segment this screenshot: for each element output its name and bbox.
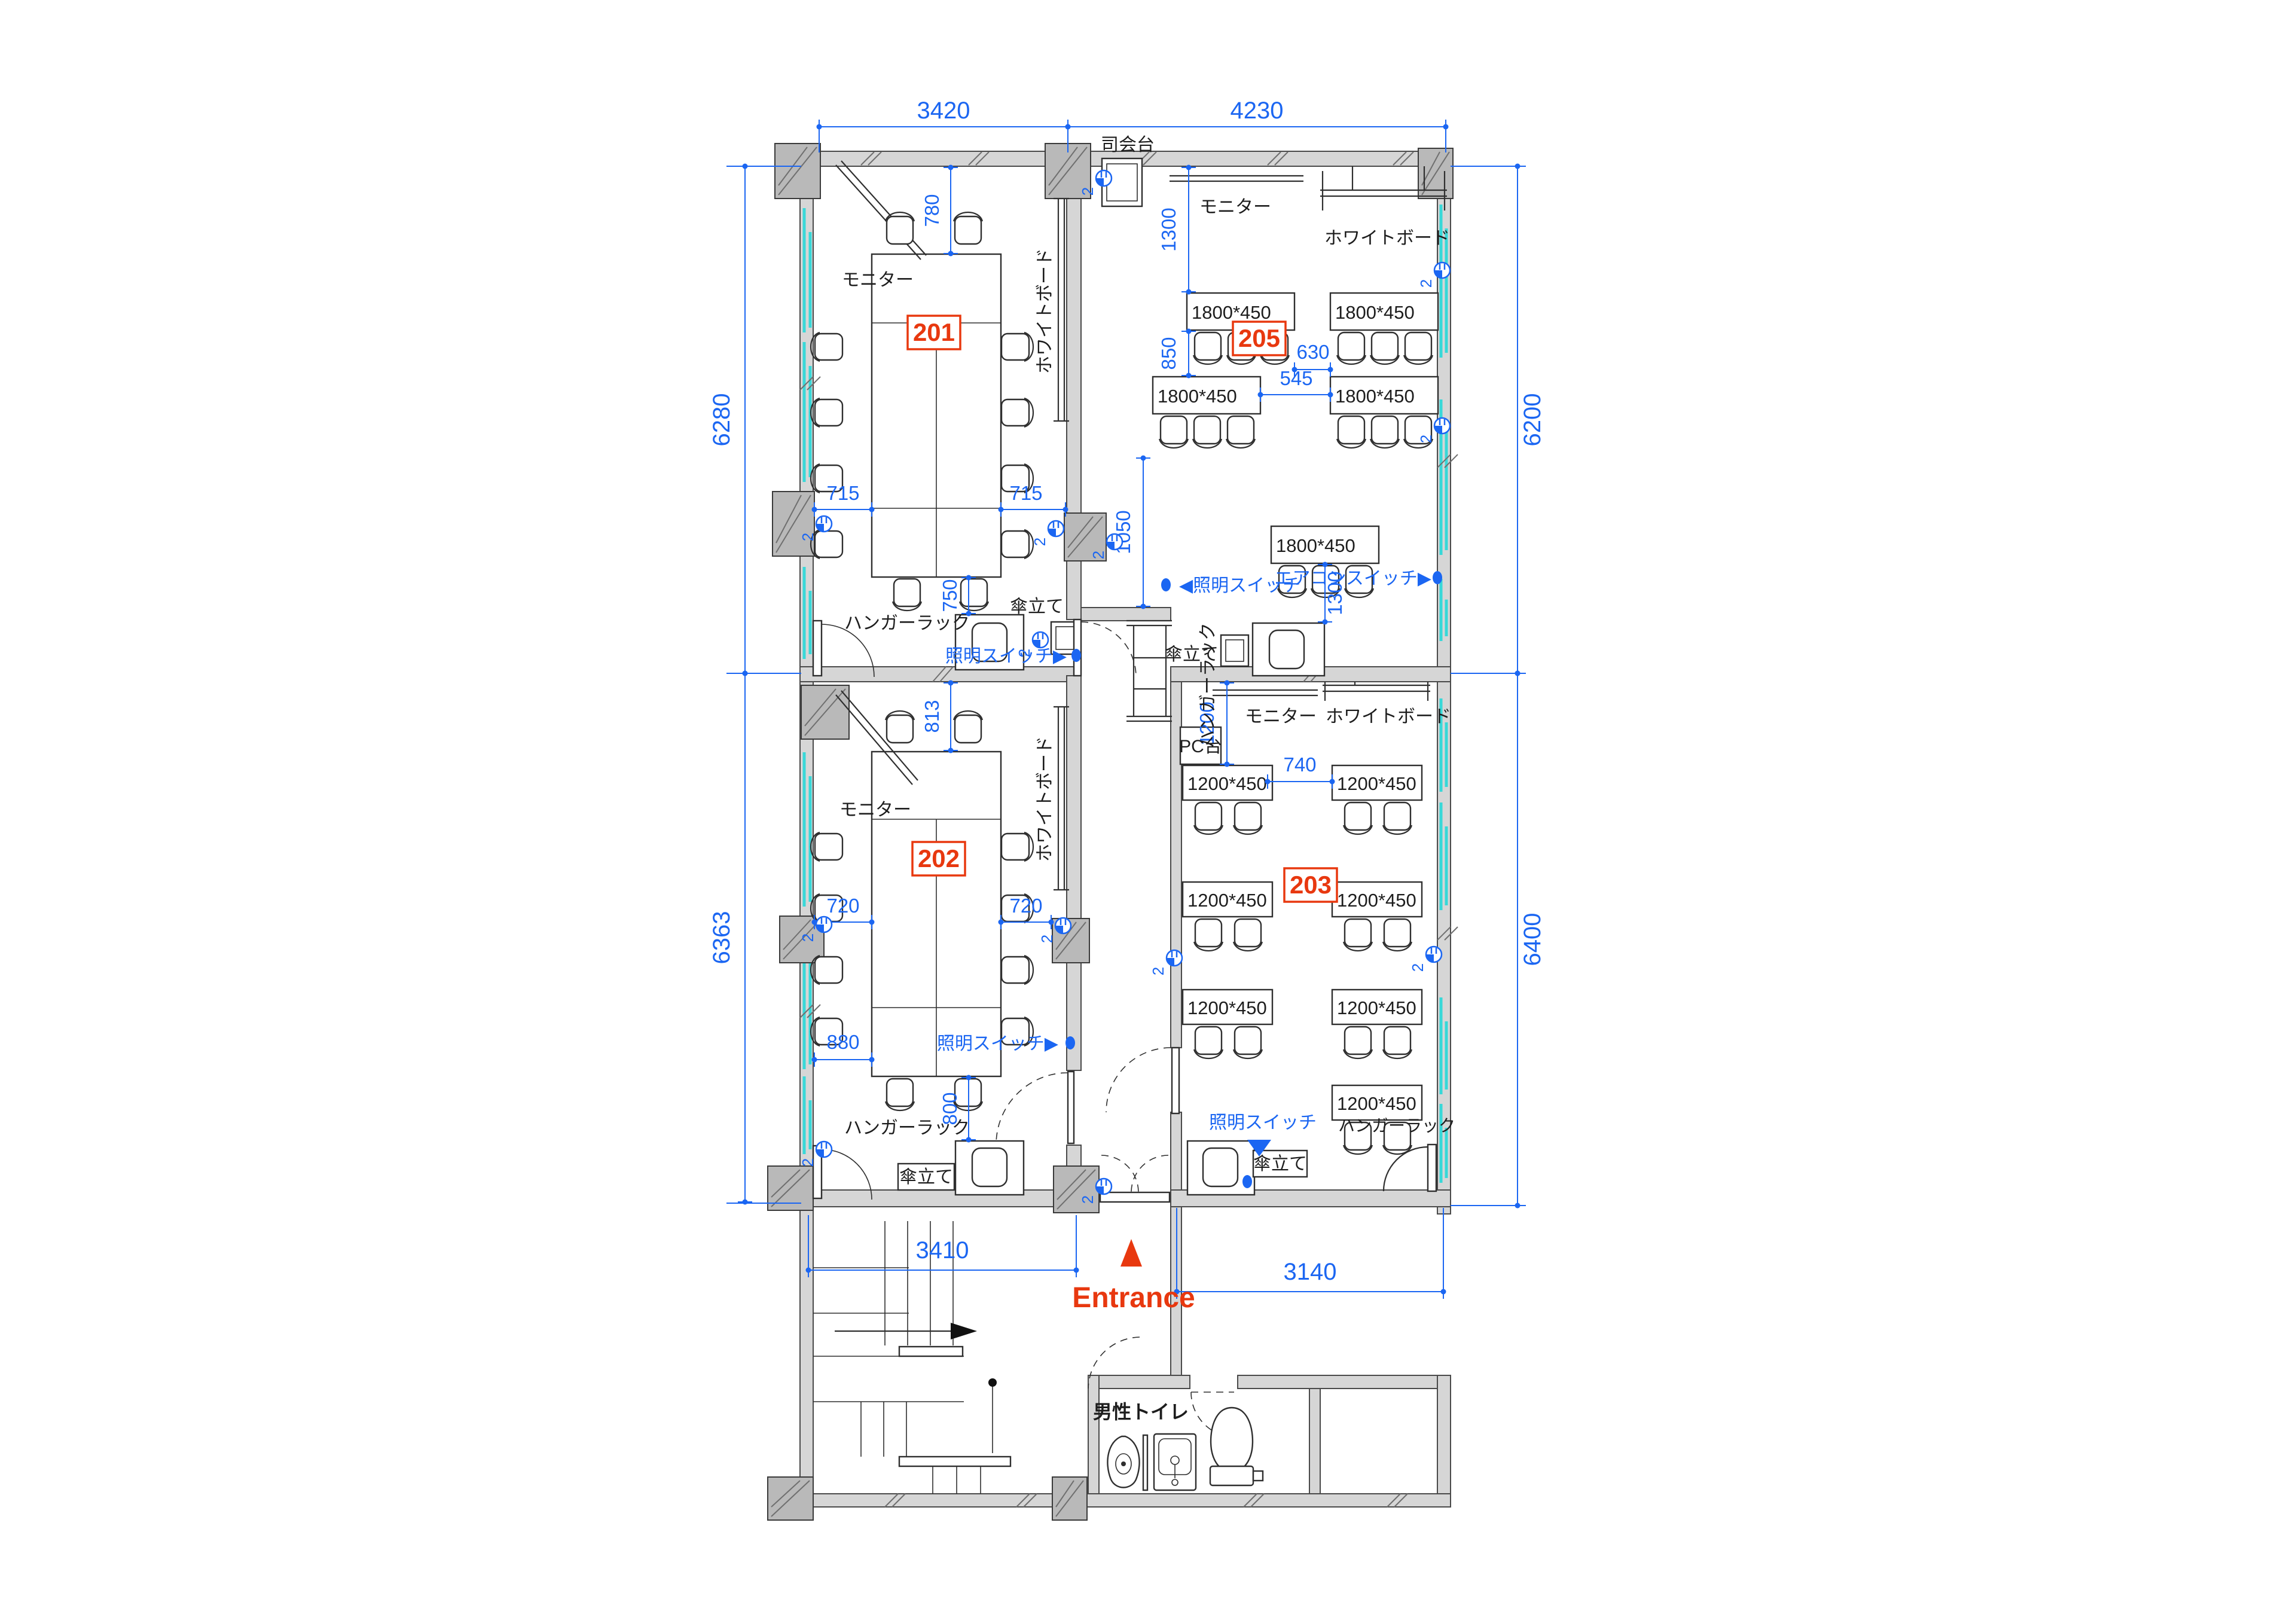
dim-text: 6280 — [709, 393, 735, 447]
label-: 照明スイッチ — [1209, 1113, 1317, 1133]
chair — [886, 212, 914, 244]
chair-seat — [1002, 957, 1029, 983]
label-: ホワイトボード — [1035, 736, 1055, 862]
label-: 照明スイッチ▶ — [945, 646, 1067, 666]
entrance-door-swing-right — [1131, 1155, 1168, 1192]
outlet-count-label: 2 — [799, 533, 817, 541]
outlet-quadrant — [1167, 958, 1174, 966]
outlet-count-label: 2 — [1015, 649, 1033, 657]
chair-seat — [815, 334, 842, 360]
chair — [811, 956, 842, 984]
desk-size-label: 1800*450 — [1335, 386, 1415, 407]
desk-size-label: 1200*450 — [1337, 773, 1416, 794]
chair-seat — [961, 579, 987, 606]
chair — [954, 711, 982, 743]
chair-seat — [887, 1079, 913, 1106]
wall-mid-left — [800, 667, 1081, 682]
room-202-number: 202 — [918, 844, 960, 872]
chair — [1344, 919, 1372, 951]
dim-text: 720 — [826, 895, 859, 917]
switch-dot — [1161, 578, 1171, 591]
chair-seat — [1195, 1027, 1222, 1054]
cabinet-202-inner — [972, 1148, 1007, 1186]
chair — [1234, 802, 1262, 834]
balcony-door-203-leaf — [1428, 1145, 1436, 1191]
dim-text: 6363 — [709, 911, 735, 965]
monitor-203 — [1213, 690, 1318, 695]
outlet-count-label: 2 — [1149, 967, 1167, 975]
label-: 傘立て — [899, 1167, 953, 1187]
dim-text: 750 — [939, 579, 961, 612]
whiteboard-203 — [1323, 682, 1430, 701]
label-: モニター — [1199, 197, 1271, 217]
wall-divider-mid — [1067, 676, 1081, 1070]
outlet-icon: 2 — [1409, 947, 1442, 972]
wall-bottom-band — [800, 1494, 1451, 1507]
wall-toilet-top-b — [1238, 1375, 1451, 1389]
desk-size-label: 1800*450 — [1158, 386, 1237, 407]
outlet-icon: 2 — [1031, 521, 1064, 546]
chair — [1002, 398, 1033, 427]
outlet-quadrant — [1048, 529, 1056, 536]
chair — [1370, 332, 1399, 364]
cabinet-205-inner — [1269, 630, 1304, 669]
chair — [1159, 416, 1188, 448]
dim-text: 4230 — [1231, 97, 1284, 124]
outlet-count-label: 2 — [1079, 1195, 1097, 1204]
chair-seat — [1002, 834, 1029, 860]
door-corridor-205-swing — [1081, 622, 1136, 677]
label-: 照明スイッチ▶ — [937, 1034, 1058, 1054]
chair-seat — [1228, 416, 1254, 444]
chair-seat — [1372, 332, 1398, 360]
chair-seat — [1195, 802, 1222, 830]
dim-text: 545 — [1280, 367, 1312, 389]
door-203-swing — [1106, 1048, 1171, 1112]
chair — [1226, 416, 1255, 448]
dim-text: 715 — [1009, 482, 1042, 504]
dim-text: 3410 — [916, 1237, 969, 1264]
chair-seat — [955, 216, 981, 244]
chair-seat — [887, 216, 913, 244]
label-: ホワイトボード — [1324, 228, 1450, 248]
chair — [1370, 416, 1399, 448]
chair-seat — [894, 579, 920, 606]
desk-size-label: 1200*450 — [1187, 773, 1267, 794]
label-: ハンガーラック — [844, 614, 970, 633]
chair — [1234, 919, 1262, 951]
stair-treads-lower — [933, 1466, 981, 1494]
switch-dot — [1071, 649, 1081, 662]
door-203-leaf — [1172, 1048, 1179, 1113]
chair-seat — [1372, 416, 1398, 444]
toilet-partition — [1143, 1435, 1147, 1490]
chair-seat — [1345, 1027, 1371, 1054]
label-: 司会台 — [1101, 135, 1155, 155]
toilet-flush — [1253, 1471, 1263, 1481]
dim-text: 630 — [1296, 341, 1329, 363]
balcony-door-203 — [1384, 1147, 1428, 1191]
wall-toilet-left — [1088, 1375, 1099, 1507]
chair — [1194, 802, 1223, 834]
chair — [1234, 1027, 1262, 1058]
outlet-count-label: 2 — [799, 1158, 817, 1167]
outlet-quadrant — [1434, 426, 1442, 434]
chair — [1383, 919, 1412, 951]
hanger-rack-corridor — [1126, 621, 1172, 721]
dim-text: 880 — [826, 1031, 859, 1053]
dim-text: 715 — [826, 482, 859, 504]
toilet-tank — [1210, 1466, 1253, 1485]
staircase — [813, 1221, 1010, 1494]
chair — [1337, 332, 1366, 364]
label-: ホワイトボード — [1326, 707, 1451, 727]
chair — [1194, 1027, 1223, 1058]
outlet-count-label: 2 — [1031, 538, 1049, 546]
chair — [960, 579, 988, 611]
chair-seat — [1235, 802, 1261, 830]
room-205-number: 205 — [1238, 324, 1280, 352]
chair-seat — [1345, 919, 1371, 947]
outlet-count-label: 2 — [1417, 435, 1435, 443]
chair — [811, 332, 842, 361]
chair — [1193, 332, 1222, 364]
chair — [954, 212, 982, 244]
desk-size-label: 1200*450 — [1187, 997, 1267, 1018]
chair — [1002, 956, 1033, 984]
label-: 傘立て — [1253, 1154, 1307, 1174]
outlet-quadrant — [1107, 542, 1115, 550]
entrance-door-sill — [1100, 1192, 1170, 1202]
outlet-count-label: 2 — [1417, 279, 1435, 288]
chair-seat — [815, 531, 842, 557]
chair-seat — [1384, 919, 1410, 947]
outlet-count-label: 2 — [1089, 551, 1107, 559]
entrance-label: Entrance — [1072, 1282, 1195, 1314]
chair-seat — [1002, 531, 1029, 557]
chair-seat — [1195, 332, 1221, 360]
chair — [1002, 332, 1033, 361]
dim-text: 813 — [921, 700, 943, 733]
wall-toilet-inner — [1309, 1389, 1320, 1507]
toilet-bowl — [1211, 1408, 1253, 1472]
wall-toilet-right — [1437, 1375, 1451, 1507]
chair — [893, 579, 921, 611]
chair — [1194, 919, 1223, 951]
chair-seat — [815, 834, 842, 860]
dim-text: 850 — [1158, 337, 1180, 370]
outlet-quadrant — [1096, 178, 1104, 186]
urinal-drain — [1121, 1461, 1126, 1466]
chair — [1002, 832, 1033, 861]
room-203-number: 203 — [1290, 871, 1332, 899]
desk-size-label: 1800*450 — [1276, 535, 1355, 556]
desk-size-label: 1800*450 — [1192, 302, 1271, 323]
dim-text: 3420 — [917, 97, 970, 124]
chair — [811, 398, 842, 427]
desk-size-label: 1200*450 — [1337, 997, 1416, 1018]
chair — [1383, 1027, 1412, 1058]
monitor-201 — [836, 161, 926, 260]
chair — [811, 832, 842, 861]
label-: モニター — [842, 270, 914, 290]
chair — [1344, 802, 1372, 834]
chair-seat — [1002, 334, 1029, 360]
stair-guide-dot — [988, 1378, 997, 1387]
stair-landing-b — [899, 1457, 1010, 1466]
cabinet-203-inner — [1203, 1148, 1238, 1186]
chair — [886, 1079, 914, 1110]
chair-seat — [815, 399, 842, 426]
wall-alcove-205 — [1081, 608, 1171, 621]
door-corridor-205-leaf — [1074, 620, 1081, 676]
stair-landing-a — [899, 1347, 963, 1356]
chair — [1337, 416, 1366, 448]
chair-seat — [815, 957, 842, 983]
door-202-corridor-leaf — [1068, 1072, 1074, 1143]
stair-treads-mid — [813, 1356, 964, 1457]
chair-seat — [1161, 416, 1187, 444]
chair — [1383, 802, 1412, 834]
chair — [1002, 530, 1033, 559]
switch-dot — [1433, 571, 1442, 584]
chair-seat — [955, 715, 981, 743]
mens-toilet-label: 男性トイレ — [1093, 1401, 1189, 1423]
entrance-arrow — [1120, 1239, 1142, 1267]
door-201-leaf — [813, 621, 822, 676]
outlet-quadrant — [1426, 954, 1434, 962]
switch-dot — [1065, 1036, 1075, 1049]
dim-text: 1300 — [1158, 208, 1180, 251]
outlet-count-label: 2 — [1038, 935, 1056, 943]
chair — [1344, 1027, 1372, 1058]
label-: ハンガーラック — [1338, 1116, 1455, 1135]
label-: 傘立て — [1010, 597, 1064, 617]
dim-text: 6400 — [1519, 913, 1546, 966]
monitor-205 — [1170, 176, 1303, 181]
floor-plan-page: 1800*4501800*4501800*4501800*4501800*450… — [0, 0, 2296, 1602]
label-: ハンガーラック — [1198, 623, 1218, 748]
chair — [1193, 416, 1222, 448]
chair-seat — [1195, 919, 1222, 947]
desk-size-label: 1200*450 — [1337, 1093, 1416, 1114]
chair — [1404, 332, 1433, 364]
chair-seat — [1338, 416, 1364, 444]
dim-text: 720 — [1009, 895, 1042, 917]
door-202-corridor-swing — [996, 1073, 1068, 1145]
chair-seat — [1235, 1027, 1261, 1054]
chair-seat — [1002, 399, 1029, 426]
chair-seat — [887, 715, 913, 743]
sink — [1154, 1434, 1196, 1490]
label-: モニター — [1245, 707, 1317, 727]
desk-size-label: 1800*450 — [1335, 302, 1415, 323]
label-: エアコンスイッチ▶ — [1275, 569, 1431, 588]
stair-direction-arrow — [951, 1323, 977, 1339]
floor-plan-drawing: 1800*4501800*4501800*4501800*4501800*450… — [0, 0, 2296, 1602]
outlet-quadrant — [1434, 270, 1442, 278]
label-: モニター — [839, 800, 911, 820]
wall-toilet-top-a — [1088, 1375, 1190, 1389]
dim-text: 6200 — [1519, 393, 1546, 447]
chair-seat — [1345, 802, 1371, 830]
wall-right — [1437, 151, 1451, 1214]
dim-text: 780 — [921, 194, 943, 227]
chair-seat — [1384, 802, 1410, 830]
chair-seat — [1405, 332, 1431, 360]
label-: ホワイトボード — [1035, 248, 1055, 374]
desk-size-label: 1200*450 — [1187, 890, 1267, 911]
chair-seat — [1235, 919, 1261, 947]
outlet-count-label: 2 — [1409, 963, 1427, 972]
outlet-count-label: 2 — [1079, 187, 1097, 196]
label-: ハンガーラック — [844, 1118, 970, 1138]
chair-seat — [1194, 416, 1220, 444]
dim-text: 3140 — [1284, 1259, 1337, 1285]
switch-dot — [1242, 1175, 1252, 1188]
chair-seat — [1384, 1027, 1410, 1054]
chair-seat — [1338, 332, 1364, 360]
outlet-count-label: 2 — [799, 933, 817, 942]
dim-text: 740 — [1283, 753, 1316, 776]
chair — [886, 711, 914, 743]
desk-size-label: 1200*450 — [1337, 890, 1416, 911]
room-201-number: 201 — [913, 318, 955, 346]
label-PC: PC台 — [1179, 737, 1222, 756]
